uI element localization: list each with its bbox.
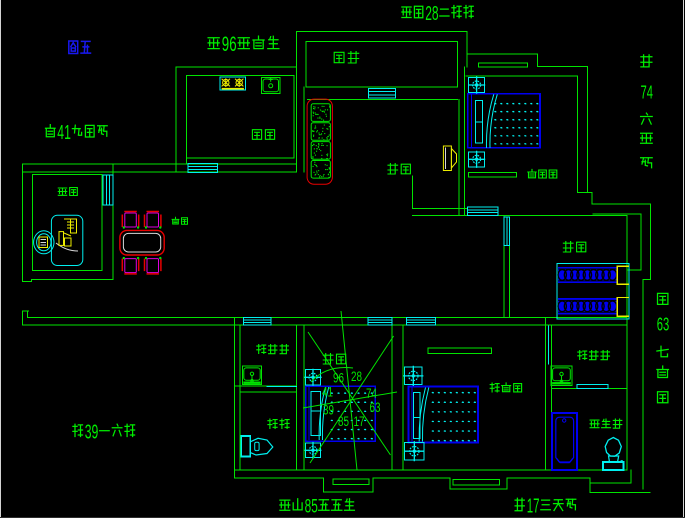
svg-text:39: 39: [85, 422, 99, 444]
svg-text:17: 17: [354, 413, 365, 429]
svg-text:63: 63: [657, 314, 670, 334]
svg-text:85: 85: [305, 496, 318, 518]
svg-text:41: 41: [322, 384, 333, 400]
svg-text:85: 85: [338, 413, 349, 429]
svg-text:96: 96: [333, 370, 344, 386]
svg-text:39: 39: [323, 402, 334, 418]
svg-text:74: 74: [641, 83, 654, 103]
svg-text:63: 63: [370, 399, 381, 415]
svg-text:28: 28: [425, 3, 438, 25]
svg-text:17: 17: [527, 496, 540, 518]
svg-text:41: 41: [57, 122, 71, 144]
svg-text:28: 28: [351, 368, 362, 384]
svg-text:96: 96: [222, 33, 237, 56]
